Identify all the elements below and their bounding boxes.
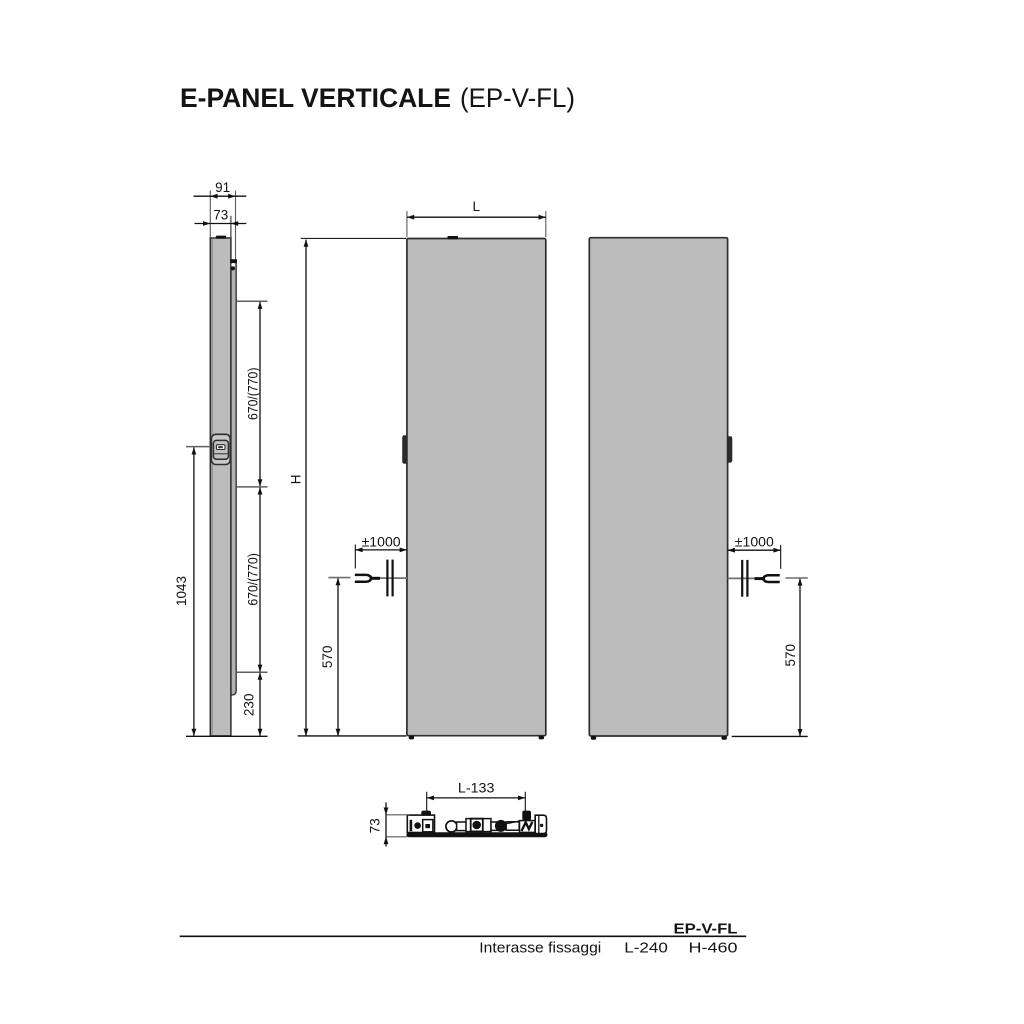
svg-text:670/(770): 670/(770) <box>246 553 261 606</box>
svg-text:73: 73 <box>213 207 228 222</box>
svg-text:(EP-V-FL): (EP-V-FL) <box>460 83 575 113</box>
svg-text:H: H <box>289 475 304 485</box>
svg-text:1043: 1043 <box>174 576 189 606</box>
svg-text:±1000: ±1000 <box>735 535 774 550</box>
svg-text:H-460: H-460 <box>689 940 738 957</box>
svg-text:±1000: ±1000 <box>362 534 401 549</box>
svg-text:91: 91 <box>215 180 230 195</box>
svg-text:L: L <box>473 199 481 214</box>
svg-text:E-PANEL VERTICALE: E-PANEL VERTICALE <box>180 83 451 113</box>
svg-text:230: 230 <box>241 694 256 717</box>
svg-text:670/(770): 670/(770) <box>246 368 261 421</box>
svg-text:EP-V-FL: EP-V-FL <box>674 921 738 938</box>
svg-text:L-133: L-133 <box>458 781 495 796</box>
svg-text:570: 570 <box>783 644 798 667</box>
svg-text:570: 570 <box>320 646 335 669</box>
svg-text:Interasse fissaggi: Interasse fissaggi <box>479 940 601 957</box>
svg-text:L-240: L-240 <box>624 940 668 957</box>
svg-text:73: 73 <box>368 818 383 833</box>
